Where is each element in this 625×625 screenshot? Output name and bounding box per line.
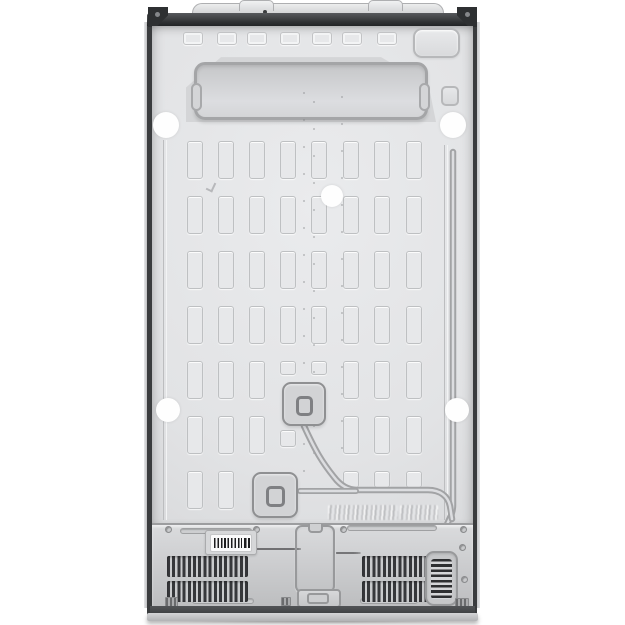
product-photo-stage [0, 0, 625, 625]
bottom-plinth [147, 613, 478, 621]
cord-channel-notch [308, 524, 323, 533]
side-grille [431, 559, 452, 599]
base-clip [281, 597, 291, 606]
cord-channel [295, 525, 335, 593]
screw-icon [459, 544, 466, 551]
fine-print-line [336, 552, 354, 554]
vent-grille-left [167, 581, 248, 602]
cord-channel-foot-slot [307, 593, 329, 604]
vent-grille-left [167, 556, 248, 577]
fine-print-line [257, 548, 285, 550]
screw-icon [461, 576, 468, 583]
